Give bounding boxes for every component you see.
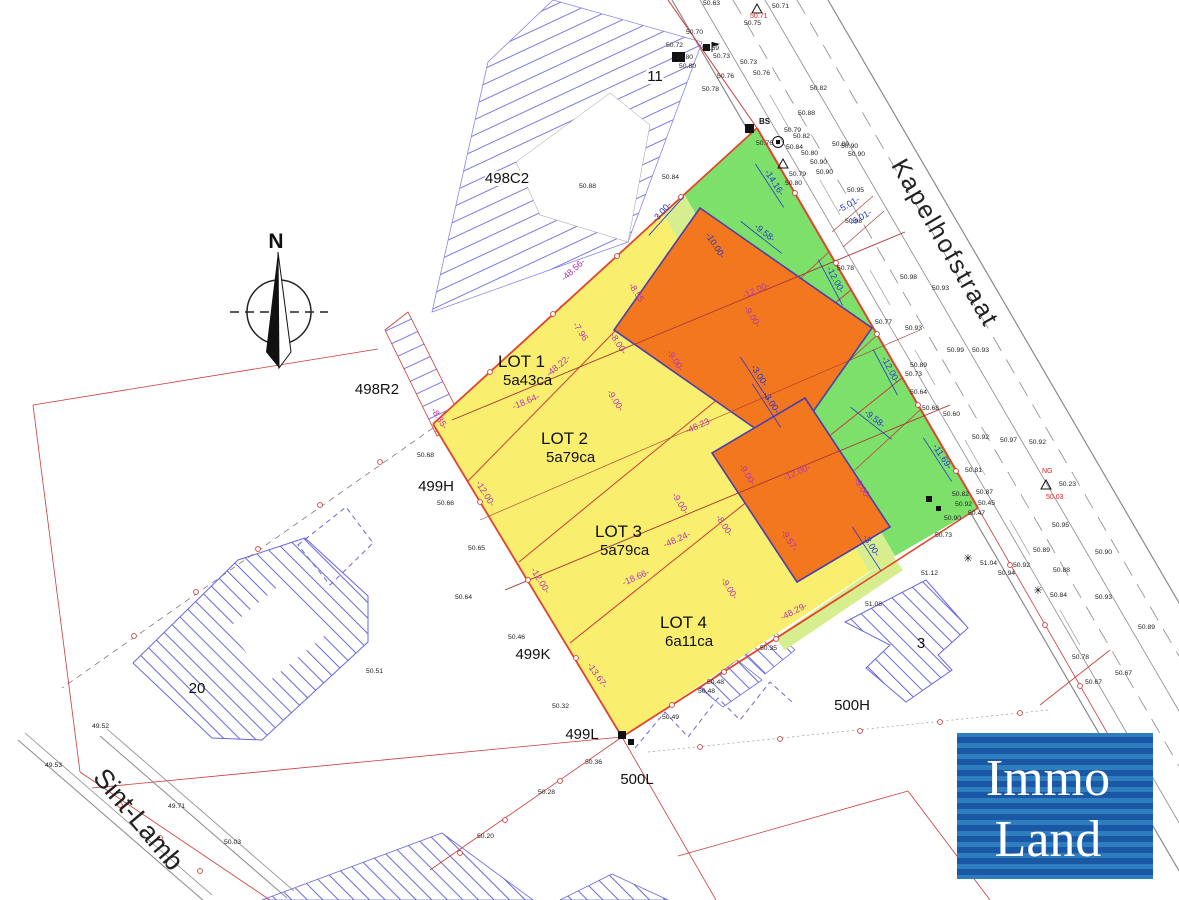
spot-height: 50.95	[1052, 522, 1069, 529]
red-survey-label: 50.71	[750, 13, 768, 20]
spot-height: 50.88	[1053, 567, 1070, 574]
survey-point	[618, 731, 626, 739]
spot-height: 50.72	[666, 42, 683, 49]
spot-height: 50.20	[477, 833, 494, 840]
spot-height: 51.04	[980, 560, 997, 567]
spot-height: 50.45	[978, 500, 995, 507]
spot-height: 50.03	[224, 839, 241, 846]
boundary-marker	[670, 703, 675, 708]
parcel-boundary-line	[678, 791, 908, 856]
spot-height: 50.28	[538, 789, 555, 796]
red-survey-label: NG	[1042, 468, 1053, 475]
spot-height: 50.47	[968, 510, 985, 517]
spot-height: 50.67	[1115, 670, 1132, 677]
spot-height: 50.95	[847, 187, 864, 194]
spot-height: 50.92	[972, 434, 989, 441]
spot-height: 50.98	[900, 274, 917, 281]
boundary-marker	[679, 195, 684, 200]
benchmark-triangle-icon	[1041, 480, 1051, 489]
street-tick	[1060, 610, 1080, 645]
parcel-number-label: 500H	[834, 697, 870, 714]
lot-area-label: 5a79ca	[600, 542, 650, 559]
house-3-hatch	[845, 580, 968, 702]
boundary-marker	[916, 403, 921, 408]
spot-height: 50.92	[955, 501, 972, 508]
spot-height: 50.64	[455, 594, 472, 601]
boundary-marker	[526, 578, 531, 583]
compass-north-label: N	[268, 230, 283, 253]
site-plan-drawing: ✳✳ -3.00--10.00--9.58--12.00--14.16--5.0…	[0, 0, 1179, 900]
spot-height: 50.73	[740, 59, 757, 66]
boundary-marker	[558, 779, 563, 784]
tree-icon: ✳	[963, 553, 972, 565]
parcel-boundary-line	[92, 737, 622, 788]
spot-height: 51.08	[865, 601, 882, 608]
compass-needle-dark	[266, 252, 279, 368]
spot-height: 50.84	[662, 174, 679, 181]
parcel-boundary-line	[33, 405, 80, 772]
boundary-marker	[478, 500, 483, 505]
boundary-marker	[1018, 711, 1023, 716]
spot-height: 50.90	[810, 159, 827, 166]
spot-height: 50.93	[905, 325, 922, 332]
boundary-marker	[488, 370, 493, 375]
boundary-marker	[132, 634, 137, 639]
boundary-marker	[793, 191, 798, 196]
spot-height: 50.65	[468, 545, 485, 552]
boundary-marker	[1078, 684, 1083, 689]
spot-height: 50.78	[837, 265, 854, 272]
spot-height: 50.70	[686, 29, 703, 36]
spot-height: 49.52	[92, 723, 109, 730]
spot-height: 50.60	[943, 411, 960, 418]
red-survey-label: 50.03	[1046, 494, 1064, 501]
bs-marker-label: BS	[759, 117, 771, 126]
boundary-marker	[858, 729, 863, 734]
spot-height: 50.82	[952, 491, 969, 498]
boundary-marker	[1008, 563, 1013, 568]
dimension-blue: -5.01-	[836, 194, 861, 214]
spot-height: 50.88	[798, 110, 815, 117]
boundary-marker	[954, 469, 959, 474]
spot-height: 50.90	[848, 151, 865, 158]
spot-height: 50.87	[976, 489, 993, 496]
lot-name-label: LOT 4	[660, 613, 707, 632]
spot-height: 50.67	[1085, 679, 1102, 686]
boundary-marker	[503, 818, 508, 823]
boundary-marker	[378, 460, 383, 465]
spot-height: 50.82	[810, 85, 827, 92]
spot-height: 50.90	[944, 515, 961, 522]
bottom-hatch-1	[262, 833, 533, 900]
spot-height: 50.80	[676, 54, 693, 61]
spot-height: 50.76	[756, 140, 773, 147]
spot-height: 50.78	[1072, 654, 1089, 661]
benchmark-triangle-icon	[752, 4, 762, 13]
parcel-boundary-line	[33, 349, 378, 405]
survey-point	[926, 496, 932, 502]
parcel-boundary-line	[622, 737, 716, 900]
spot-height: 50.92	[1029, 439, 1046, 446]
logo-text-land: Land	[995, 811, 1102, 868]
boundary-marker	[551, 312, 556, 317]
parcel-number-label: 499L	[565, 726, 598, 743]
spot-height: 50.89	[1033, 547, 1050, 554]
boundary-marker	[938, 720, 943, 725]
spot-height: 50.88	[579, 183, 596, 190]
parcel-boundary-line	[430, 737, 622, 870]
boundary-marker	[198, 869, 203, 874]
boundary-marker	[778, 737, 783, 742]
spot-height: 50.63	[703, 0, 720, 7]
spot-height: 50.97	[1000, 437, 1017, 444]
spot-height: 50.89	[1138, 624, 1155, 631]
parcel-number-label: 3	[917, 635, 925, 652]
street-name-kapelhofstraat: Kapelhofstraat	[885, 154, 1004, 332]
spot-height: 50.90	[1095, 549, 1112, 556]
spot-height: 50.68	[417, 452, 434, 459]
spot-height: 50.69	[702, 45, 719, 52]
spot-height: 50.98	[845, 218, 862, 225]
spot-height: 50.23	[1059, 481, 1076, 488]
spot-height: 51.12	[921, 570, 938, 577]
parcel-number-label: 499H	[418, 478, 454, 495]
spot-height: 50.73	[713, 53, 730, 60]
spot-height: 50.82	[793, 133, 810, 140]
boundary-marker	[194, 590, 199, 595]
spot-height: 50.48	[698, 688, 715, 695]
survey-point	[745, 124, 754, 133]
parcel-number-label: 11	[647, 68, 663, 85]
tree-icon: ✳	[1033, 585, 1042, 597]
spot-height: 50.48	[707, 679, 724, 686]
parcel-number-label: 500L	[620, 771, 653, 788]
lot-name-label: LOT 1	[498, 352, 545, 371]
boundary-marker	[256, 547, 261, 552]
spot-height: 50.76	[717, 73, 734, 80]
spot-height: 50.36	[585, 759, 602, 766]
spot-height: 50.64	[910, 389, 927, 396]
spot-height: 50.68	[922, 405, 939, 412]
spot-height: 50.51	[366, 668, 383, 675]
lot-name-label: LOT 3	[595, 522, 642, 541]
boundary-marker	[774, 637, 779, 642]
spot-height: 50.73	[905, 371, 922, 378]
spot-height: 50.75	[744, 20, 761, 27]
survey-point	[936, 506, 941, 511]
parcel-number-label: 498R2	[355, 381, 399, 398]
spot-height: 50.90	[816, 169, 833, 176]
spot-height: 50.92	[1013, 562, 1030, 569]
spot-height: 50.93	[972, 347, 989, 354]
compass-needle-light	[278, 252, 291, 368]
spot-height: 50.89	[910, 362, 927, 369]
spot-height: 50.71	[772, 3, 789, 10]
spot-height: 50.77	[875, 319, 892, 326]
spot-height: 49.71	[168, 803, 185, 810]
boundary-marker	[875, 332, 880, 337]
spot-height: 50.73	[935, 532, 952, 539]
spot-height: 50.32	[552, 703, 569, 710]
cadastral-plan-page: ✳✳ -3.00--10.00--9.58--12.00--14.16--5.0…	[0, 0, 1179, 900]
spot-height: 50.84	[1050, 592, 1067, 599]
boundary-marker	[698, 745, 703, 750]
lot-area-label: 5a43ca	[503, 372, 553, 389]
street-tick	[870, 270, 890, 305]
utility-circle-icon	[776, 140, 780, 144]
spot-height: 50.66	[437, 500, 454, 507]
spot-height: 50.80	[801, 150, 818, 157]
spot-height: 50.80	[679, 63, 696, 70]
boundary-marker	[615, 254, 620, 259]
spot-height: 50.49	[662, 714, 679, 721]
lot-area-label: 6a11ca	[665, 633, 714, 650]
lot-name-label: LOT 2	[541, 429, 588, 448]
spot-height: 50.46	[508, 634, 525, 641]
lot-area-label: 5a79ca	[546, 449, 596, 466]
street-name-sint-lambertus: Sint-Lamb	[87, 763, 189, 877]
spot-height: 50.93	[932, 285, 949, 292]
spot-height: 50.93	[1095, 594, 1112, 601]
boundary-marker	[318, 503, 323, 508]
spot-height: 50.94	[998, 570, 1015, 577]
boundary-marker	[574, 656, 579, 661]
boundary-marker	[722, 670, 727, 675]
logo-text-immo: Immo	[986, 750, 1110, 807]
parcel-number-label: 498C2	[485, 170, 529, 187]
spot-height: 50.78	[702, 86, 719, 93]
boundary-marker	[1043, 623, 1048, 628]
spot-height: 50.76	[753, 70, 770, 77]
spot-height: 50.90	[841, 143, 858, 150]
parcel-number-label: 499K	[515, 646, 550, 663]
spot-height: 50.99	[947, 347, 964, 354]
bottom-hatch-2	[560, 874, 668, 900]
survey-point	[628, 739, 634, 745]
spot-height: 49.53	[45, 762, 62, 769]
north-compass: N	[230, 230, 328, 368]
parcel-number-label: 20	[189, 680, 206, 697]
boundary-marker	[458, 851, 463, 856]
spot-height: 50.80	[785, 180, 802, 187]
spot-height: 50.35	[760, 645, 777, 652]
spot-height: 50.79	[789, 171, 806, 178]
spot-height: 50.81	[965, 467, 982, 474]
immoland-logo: Immo Land	[957, 733, 1153, 879]
